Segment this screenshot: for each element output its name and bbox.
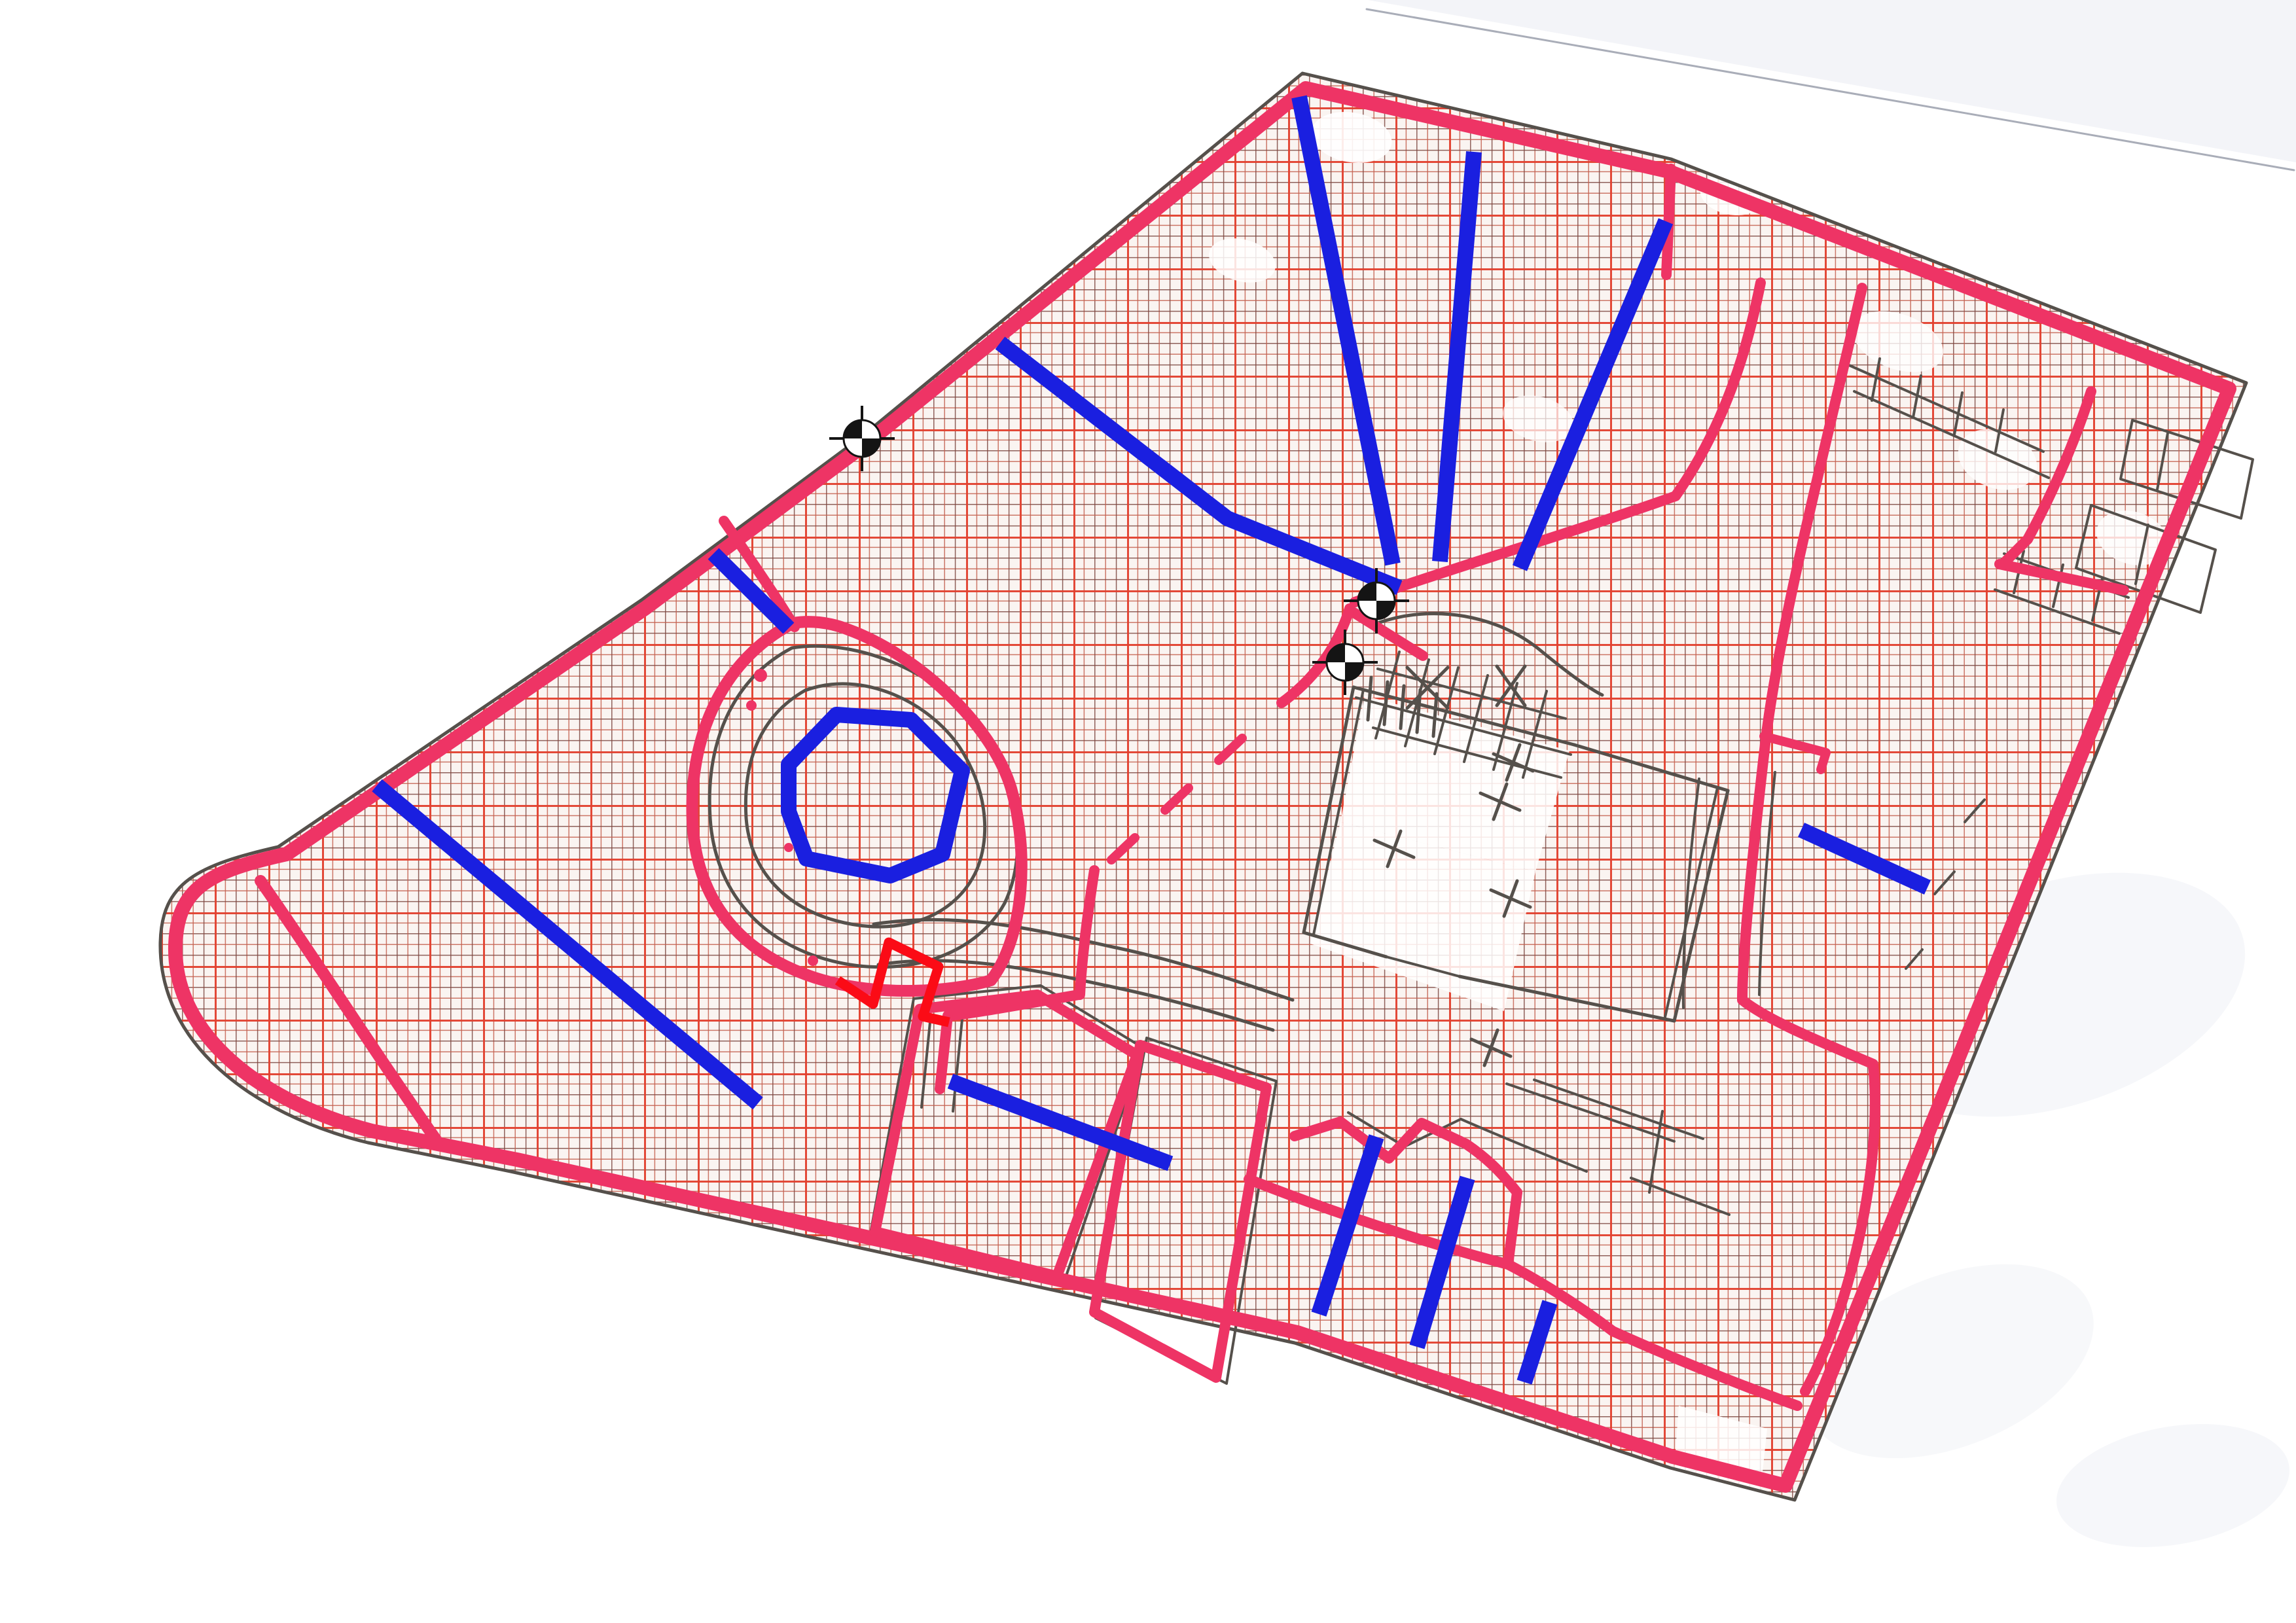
red-drip-3 bbox=[784, 843, 793, 852]
red-drip-1 bbox=[754, 669, 767, 682]
red-drip-2 bbox=[746, 700, 757, 711]
red-drip-4 bbox=[808, 955, 818, 966]
marker-quadrant-nw bbox=[844, 420, 862, 438]
scan-smudge-corner bbox=[2047, 1407, 2296, 1564]
scanned-site-plan bbox=[0, 0, 2296, 1623]
site-plan-svg bbox=[0, 0, 2296, 1623]
